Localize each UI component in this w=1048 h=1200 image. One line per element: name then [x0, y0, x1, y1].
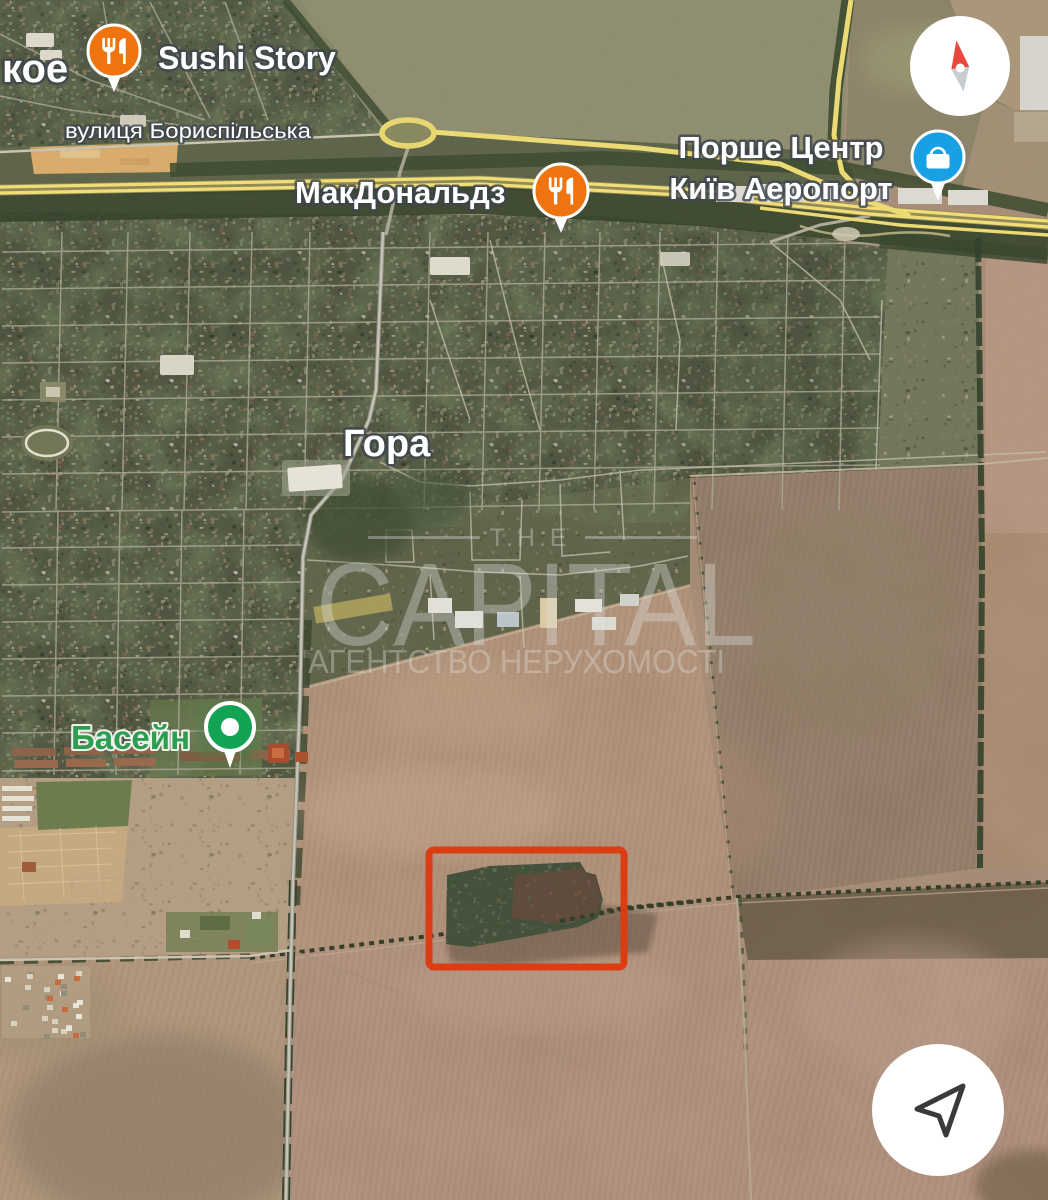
svg-text:Гора: Гора: [343, 423, 431, 465]
svg-text:кое: кое: [2, 47, 68, 91]
svg-text:Басейн: Басейн: [71, 719, 190, 756]
svg-text:Порше Центр: Порше Центр: [679, 130, 884, 165]
svg-text:АГЕНТСТВО НЕРУХОМОСТІ: АГЕНТСТВО НЕРУХОМОСТІ: [308, 643, 725, 680]
svg-text:Sushi Story: Sushi Story: [158, 40, 336, 76]
svg-text:МакДональдз: МакДональдз: [295, 175, 506, 210]
svg-text:Київ Аеропорт: Київ Аеропорт: [669, 171, 892, 206]
svg-text:вулиця Бориспільська: вулиця Бориспільська: [65, 120, 311, 143]
